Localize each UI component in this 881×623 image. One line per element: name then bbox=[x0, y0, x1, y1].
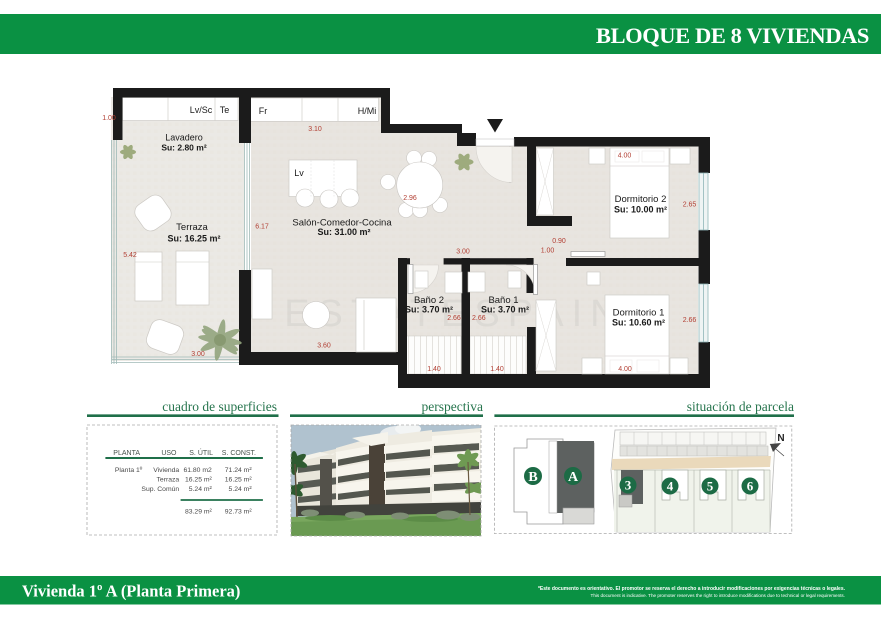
svg-text:Terraza: Terraza bbox=[176, 222, 208, 233]
svg-text:3.10: 3.10 bbox=[308, 126, 322, 133]
svg-text:5.42: 5.42 bbox=[123, 252, 137, 259]
svg-text:1.00: 1.00 bbox=[102, 115, 116, 122]
svg-text:6.17: 6.17 bbox=[255, 224, 269, 231]
svg-text:USO: USO bbox=[161, 450, 177, 457]
svg-text:6: 6 bbox=[747, 479, 754, 494]
svg-text:61.80 m2: 61.80 m2 bbox=[183, 467, 212, 474]
svg-text:Su: 10.60 m²: Su: 10.60 m² bbox=[612, 318, 665, 328]
svg-text:16.25 m²: 16.25 m² bbox=[225, 477, 253, 484]
svg-text:S. ÚTIL: S. ÚTIL bbox=[189, 448, 213, 457]
svg-text:Sup. Común: Sup. Común bbox=[141, 486, 179, 493]
svg-text:A: A bbox=[568, 470, 579, 485]
svg-text:3.00: 3.00 bbox=[191, 351, 205, 358]
svg-text:2.96: 2.96 bbox=[403, 195, 417, 202]
svg-text:Lv: Lv bbox=[294, 168, 304, 178]
svg-text:Terraza: Terraza bbox=[157, 477, 180, 484]
svg-text:Te: Te bbox=[220, 105, 230, 115]
svg-text:PLANTA: PLANTA bbox=[113, 450, 140, 457]
svg-text:83.29 m²: 83.29 m² bbox=[185, 509, 213, 516]
svg-text:3.60: 3.60 bbox=[317, 343, 331, 350]
svg-text:4.00: 4.00 bbox=[618, 153, 632, 160]
svg-text:B: B bbox=[528, 470, 537, 485]
svg-text:Lavadero: Lavadero bbox=[165, 133, 203, 143]
svg-text:5.24 m²: 5.24 m² bbox=[189, 486, 213, 493]
svg-text:4.00: 4.00 bbox=[618, 366, 632, 373]
svg-text:cuadro de superficies: cuadro de superficies bbox=[162, 399, 277, 414]
svg-text:Su: 10.00 m²: Su: 10.00 m² bbox=[614, 205, 667, 215]
svg-text:5: 5 bbox=[707, 479, 714, 494]
svg-text:perspectiva: perspectiva bbox=[422, 399, 483, 414]
svg-text:Lv/Sc: Lv/Sc bbox=[190, 105, 213, 115]
svg-text:4: 4 bbox=[667, 479, 674, 494]
svg-text:Fr: Fr bbox=[259, 106, 268, 116]
svg-text:2.66: 2.66 bbox=[683, 317, 697, 324]
svg-text:*Este documento es orientativo: *Este documento es orientativo. El promo… bbox=[538, 586, 846, 592]
svg-text:5.24 m²: 5.24 m² bbox=[229, 486, 253, 493]
svg-text:Su: 16.25 m²: Su: 16.25 m² bbox=[167, 234, 220, 244]
svg-text:Planta 1º: Planta 1º bbox=[115, 467, 143, 474]
svg-text:Su: 2.80 m²: Su: 2.80 m² bbox=[161, 143, 207, 153]
svg-text:situación de parcela: situación de parcela bbox=[687, 399, 794, 414]
svg-text:1.40: 1.40 bbox=[427, 366, 441, 373]
svg-text:92.73 m²: 92.73 m² bbox=[225, 509, 253, 516]
svg-text:This document is indicative. T: This document is indicative. The promote… bbox=[591, 593, 845, 598]
svg-text:3.00: 3.00 bbox=[456, 249, 470, 256]
svg-text:H/Mi: H/Mi bbox=[358, 106, 377, 116]
svg-text:1.00: 1.00 bbox=[541, 248, 555, 255]
svg-text:71.24 m²: 71.24 m² bbox=[225, 467, 253, 474]
svg-text:Dormitorio 2: Dormitorio 2 bbox=[615, 194, 667, 205]
svg-text:Su: 31.00 m²: Su: 31.00 m² bbox=[317, 227, 370, 237]
svg-text:S. CONST.: S. CONST. bbox=[222, 450, 256, 457]
svg-text:16.25 m²: 16.25 m² bbox=[185, 477, 213, 484]
svg-text:2.65: 2.65 bbox=[683, 202, 697, 209]
svg-text:1.40: 1.40 bbox=[490, 366, 504, 373]
svg-text:2.66: 2.66 bbox=[472, 315, 486, 322]
svg-text:Vivienda: Vivienda bbox=[153, 467, 179, 474]
svg-text:0.90: 0.90 bbox=[552, 238, 566, 245]
svg-text:Vivienda 1º A (Planta Primera): Vivienda 1º A (Planta Primera) bbox=[22, 582, 240, 601]
svg-text:Su: 3.70 m²: Su: 3.70 m² bbox=[405, 305, 453, 315]
svg-text:BLOQUE DE 8 VIVIENDAS: BLOQUE DE 8 VIVIENDAS bbox=[596, 23, 869, 48]
svg-text:2.66: 2.66 bbox=[447, 315, 461, 322]
svg-text:Su: 3.70 m²: Su: 3.70 m² bbox=[481, 305, 529, 315]
svg-text:3: 3 bbox=[625, 478, 632, 493]
svg-text:N: N bbox=[777, 433, 784, 444]
